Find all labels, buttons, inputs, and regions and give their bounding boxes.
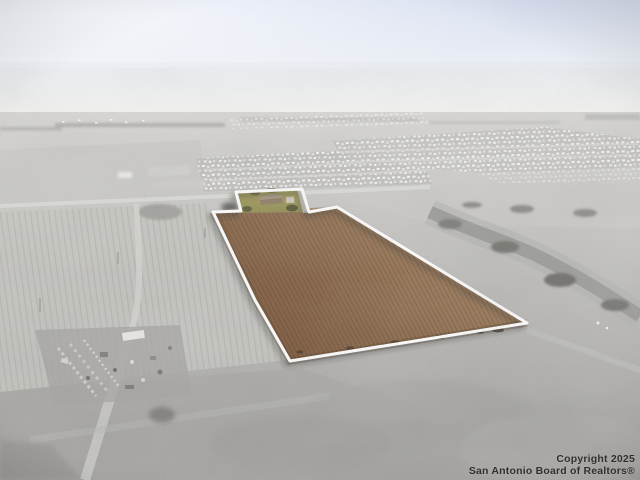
copyright-watermark: Copyright 2025 San Antonio Board of Real… xyxy=(469,453,635,477)
aerial-photo: Copyright 2025 San Antonio Board of Real… xyxy=(0,0,640,480)
aerial-scene xyxy=(0,0,640,480)
copyright-line2: San Antonio Board of Realtors® xyxy=(469,465,635,477)
vignette xyxy=(0,0,640,480)
copyright-line1: Copyright 2025 xyxy=(469,453,635,465)
